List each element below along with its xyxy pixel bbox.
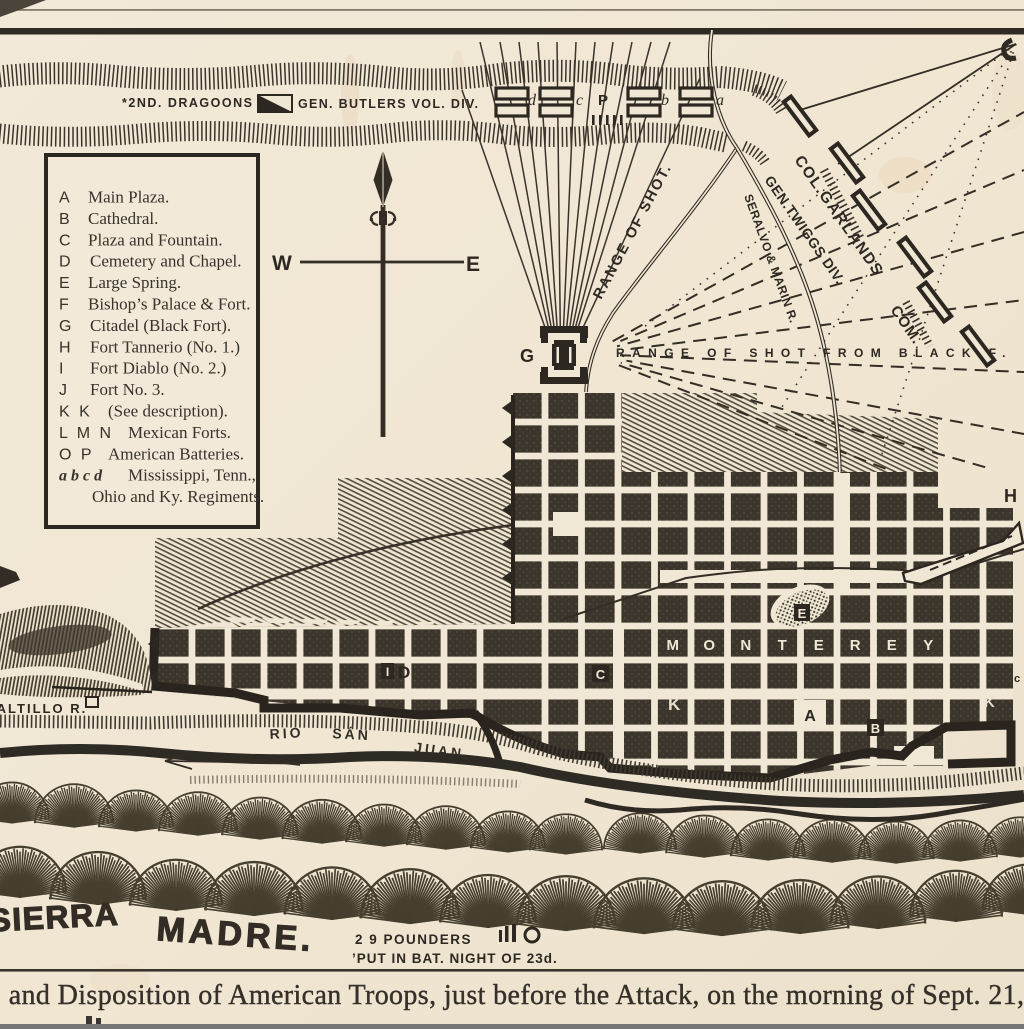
svg-text:O P: O P bbox=[59, 446, 94, 463]
svg-text:E: E bbox=[814, 637, 824, 654]
svg-text:D: D bbox=[59, 254, 73, 271]
svg-text:D: D bbox=[398, 663, 410, 682]
svg-text:Fort No. 3.: Fort No. 3. bbox=[90, 380, 165, 399]
svg-text:Ohio and Ky. Regiments.: Ohio and Ky. Regiments. bbox=[92, 487, 264, 506]
svg-text:T: T bbox=[778, 637, 787, 654]
svg-text:L M N: L M N bbox=[59, 425, 114, 442]
svg-text:I: I bbox=[386, 665, 389, 679]
svg-text:R: R bbox=[850, 637, 861, 654]
svg-text:K K: K K bbox=[59, 404, 92, 421]
svg-text:SÁN: SÁN bbox=[332, 725, 371, 743]
svg-text:E: E bbox=[59, 275, 72, 292]
svg-text:Mexican Forts.: Mexican Forts. bbox=[128, 423, 231, 442]
svg-text:G: G bbox=[59, 318, 74, 335]
svg-text:Cemetery and Chapel.: Cemetery and Chapel. bbox=[90, 252, 242, 271]
svg-text:F: F bbox=[59, 297, 71, 314]
svg-text:d: d bbox=[528, 92, 537, 109]
svg-text:W: W bbox=[272, 252, 292, 275]
svg-text:Large Spring.: Large Spring. bbox=[88, 273, 181, 292]
svg-text:H: H bbox=[59, 339, 73, 356]
svg-text:RANGE OF SHOT FROM BLACK F.: RANGE OF SHOT FROM BLACK F. bbox=[616, 346, 1008, 360]
svg-text:Cathedral.: Cathedral. bbox=[88, 209, 158, 228]
svg-text:I: I bbox=[59, 361, 66, 378]
svg-text:, and Disposition of American: , and Disposition of American Troops, ju… bbox=[0, 980, 1024, 1011]
svg-text:Plaza and Fountain.: Plaza and Fountain. bbox=[88, 230, 223, 249]
svg-text:Fort Diablo (No. 2.): Fort Diablo (No. 2.) bbox=[90, 359, 226, 378]
svg-text:E: E bbox=[466, 253, 480, 276]
svg-text:J: J bbox=[59, 382, 70, 399]
svg-text:c: c bbox=[576, 92, 583, 109]
svg-text:c: c bbox=[1014, 673, 1020, 685]
svg-text:*2ND. DRAGOONS: *2ND. DRAGOONS bbox=[122, 96, 252, 110]
svg-text:K: K bbox=[668, 695, 681, 714]
svg-text:O: O bbox=[703, 637, 715, 654]
svg-text:abcd: abcd bbox=[59, 468, 106, 485]
svg-text:SIERRA: SIERRA bbox=[0, 896, 120, 939]
svg-text:A: A bbox=[804, 708, 816, 725]
svg-text:E: E bbox=[887, 637, 897, 654]
svg-text:E: E bbox=[798, 606, 807, 621]
svg-text:’PUT IN BAT. NIGHT OF 23d.: ’PUT IN BAT. NIGHT OF 23d. bbox=[352, 951, 558, 966]
svg-text:Citadel (Black Fort).: Citadel (Black Fort). bbox=[90, 316, 231, 335]
svg-text:B: B bbox=[59, 211, 72, 228]
svg-text:Mississippi, Tenn.,: Mississippi, Tenn., bbox=[128, 466, 256, 485]
svg-text:P: P bbox=[598, 92, 608, 109]
svg-text:Y: Y bbox=[923, 637, 933, 654]
svg-text:C: C bbox=[59, 232, 73, 249]
svg-text:a: a bbox=[716, 92, 724, 109]
svg-text:G: G bbox=[520, 346, 534, 366]
svg-text:B: B bbox=[871, 721, 880, 736]
svg-text:A: A bbox=[59, 190, 72, 207]
svg-text:American Batteries.: American Batteries. bbox=[108, 444, 244, 463]
svg-text:M: M bbox=[667, 637, 680, 654]
svg-text:Bishop’s Palace & Fort.: Bishop’s Palace & Fort. bbox=[88, 295, 250, 314]
svg-text:RIO: RIO bbox=[269, 724, 304, 742]
svg-text:2 9 POUNDERS: 2 9 POUNDERS bbox=[355, 932, 472, 947]
svg-text:Main Plaza.: Main Plaza. bbox=[88, 188, 169, 207]
svg-text:C: C bbox=[596, 667, 606, 682]
svg-text:GEN. BUTLERS VOL. DIV.: GEN. BUTLERS VOL. DIV. bbox=[298, 97, 478, 111]
svg-text:H: H bbox=[1004, 486, 1017, 506]
svg-text:SALTILLO R.: SALTILLO R. bbox=[0, 701, 87, 716]
svg-text:K: K bbox=[984, 694, 995, 711]
svg-text:N: N bbox=[740, 637, 751, 654]
svg-text:Fort Tannerio (No. 1.): Fort Tannerio (No. 1.) bbox=[90, 337, 240, 356]
svg-text:b: b bbox=[661, 92, 669, 109]
svg-text:(See description).: (See description). bbox=[108, 402, 228, 421]
